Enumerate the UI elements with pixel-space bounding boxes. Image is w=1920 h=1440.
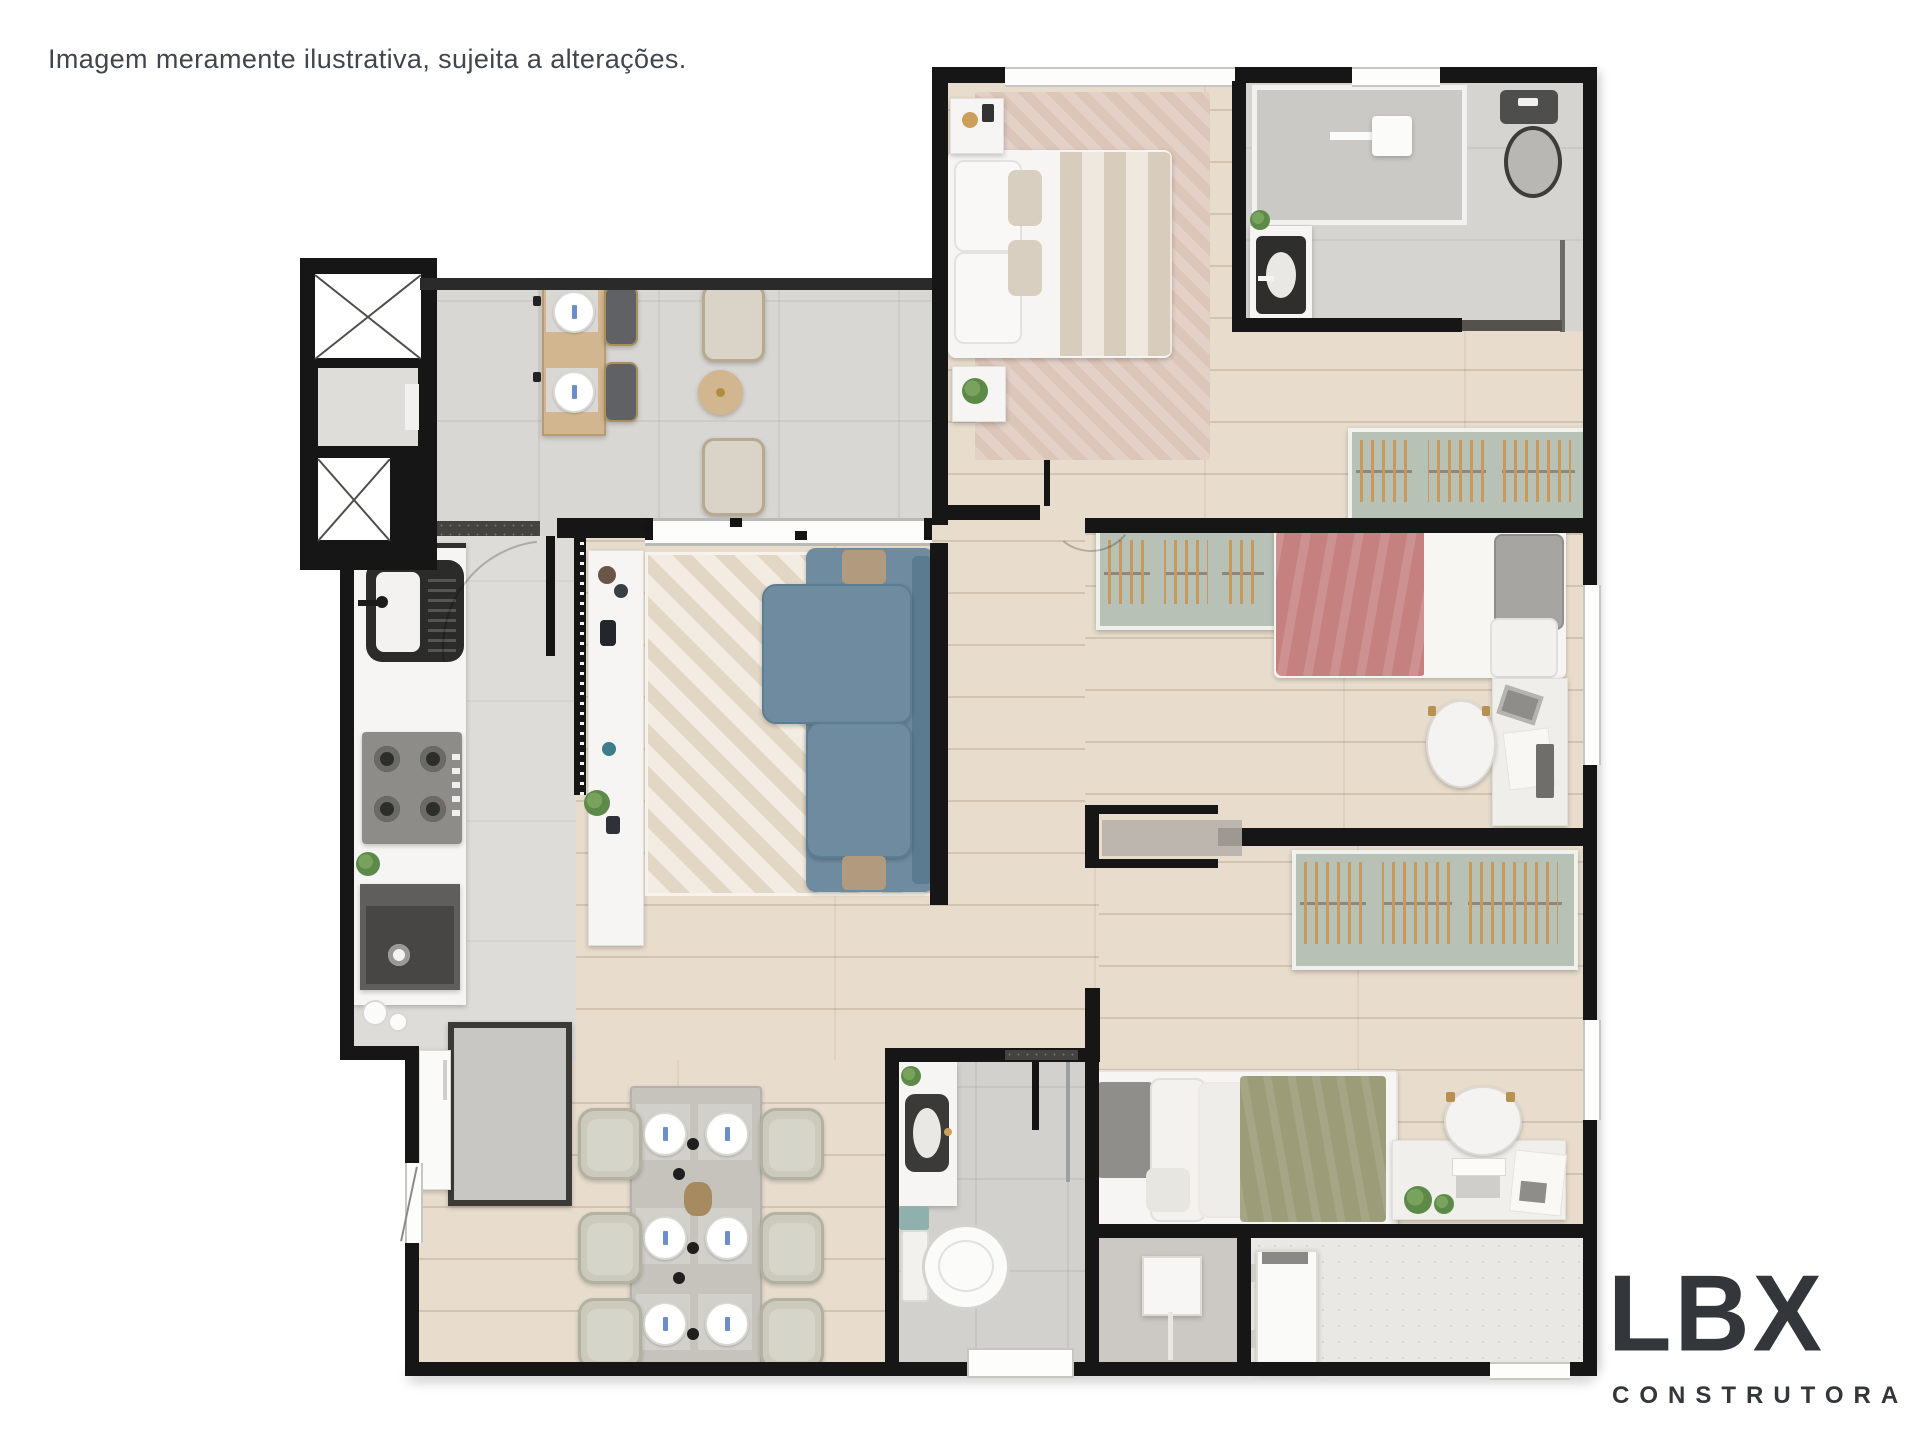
wall-jamb-top bbox=[1093, 805, 1218, 814]
decor bbox=[716, 388, 725, 397]
plate bbox=[705, 1112, 749, 1156]
heater-pipe bbox=[1168, 1312, 1173, 1360]
chair-arm bbox=[1482, 706, 1490, 716]
plate bbox=[553, 291, 595, 333]
hanger-gap bbox=[1150, 540, 1164, 604]
wall-left-step bbox=[340, 1046, 419, 1060]
elevator-car bbox=[318, 368, 418, 446]
pillow-gray bbox=[1494, 534, 1564, 630]
lounge-chair bbox=[702, 284, 765, 362]
elevator-door bbox=[405, 384, 419, 430]
dining-chair bbox=[578, 1298, 642, 1370]
logo-subtitle: CONSTRUTORA bbox=[1612, 1382, 1868, 1410]
laptop-screen bbox=[1452, 1158, 1506, 1176]
shower-arm bbox=[1330, 132, 1378, 140]
sink-bowl bbox=[376, 572, 420, 652]
closet-hangers bbox=[1108, 540, 1260, 604]
cooktop-knobs bbox=[452, 752, 460, 816]
dining-chair bbox=[578, 1108, 642, 1180]
vanity-sink bbox=[1266, 252, 1296, 298]
washing-machine bbox=[1256, 1250, 1318, 1372]
burner bbox=[420, 746, 446, 772]
dark-unit-panel bbox=[366, 906, 454, 984]
hanger-gap bbox=[1366, 862, 1382, 944]
pillow-accent bbox=[1008, 170, 1042, 226]
fridge-handle bbox=[443, 1060, 447, 1100]
decor bbox=[982, 104, 994, 122]
pass-through-counter bbox=[437, 521, 540, 536]
sofa-pillow bbox=[842, 550, 886, 584]
balcony-rail bbox=[420, 278, 932, 290]
shower-glass bbox=[1066, 1062, 1070, 1182]
wall-sofa bbox=[930, 543, 948, 905]
window-bedroom2 bbox=[1583, 585, 1601, 765]
chair-arm bbox=[1446, 1092, 1455, 1102]
decor bbox=[388, 1012, 408, 1032]
balcony-floor bbox=[420, 278, 932, 540]
closet-hangers bbox=[1304, 862, 1558, 944]
towel-rail bbox=[1560, 240, 1565, 332]
plant bbox=[356, 852, 380, 876]
window-masterbath bbox=[1352, 67, 1440, 87]
shaft-box bbox=[315, 274, 421, 358]
sofa-pillow bbox=[842, 856, 886, 890]
sofa-back bbox=[912, 556, 932, 884]
plate bbox=[643, 1302, 687, 1346]
glass bbox=[673, 1272, 685, 1284]
wall-jamb-cap bbox=[1085, 805, 1099, 868]
wall-left-kitchen bbox=[340, 518, 354, 1060]
hanger-gap bbox=[1208, 540, 1222, 604]
window-master bbox=[1005, 67, 1235, 87]
bathroom-niche-counter bbox=[1005, 1050, 1078, 1060]
floorplan-page: Imagem meramente ilustrativa, sujeita a … bbox=[0, 0, 1920, 1440]
builder-logo: LBX CONSTRUTORA bbox=[1608, 1262, 1868, 1410]
plate bbox=[705, 1302, 749, 1346]
door-threshold bbox=[1462, 320, 1562, 331]
glass bbox=[687, 1242, 699, 1254]
duvet-pink bbox=[1276, 530, 1426, 676]
toilet-tank-master bbox=[1500, 90, 1558, 124]
nightstand bbox=[950, 98, 1004, 154]
plate bbox=[705, 1216, 749, 1260]
wall-entry-left bbox=[390, 518, 437, 538]
shower-enclosure bbox=[1252, 85, 1467, 225]
pillow-knit bbox=[1146, 1168, 1190, 1212]
bathroom-door-leaf bbox=[1032, 1062, 1039, 1130]
wall-bedroom3-bottom bbox=[1099, 1224, 1583, 1238]
glass bbox=[687, 1138, 699, 1150]
shower-head bbox=[1372, 116, 1412, 156]
centerpiece bbox=[684, 1182, 712, 1216]
wall-master-bottom bbox=[932, 505, 1040, 520]
faucet-base bbox=[376, 596, 388, 608]
unit-knob bbox=[388, 944, 410, 966]
sofa-cushion bbox=[806, 722, 912, 858]
decor bbox=[606, 816, 620, 834]
shaft-box bbox=[318, 458, 390, 540]
plate bbox=[643, 1216, 687, 1260]
glass bbox=[673, 1168, 685, 1180]
wall-masterbath-bottom bbox=[1232, 318, 1462, 332]
cutlery bbox=[533, 372, 541, 382]
sliding-door-junction bbox=[795, 531, 807, 540]
water-heater bbox=[1142, 1256, 1202, 1316]
sliding-door-cap bbox=[645, 518, 653, 540]
burner bbox=[374, 746, 400, 772]
notebook bbox=[1519, 1181, 1547, 1204]
burner bbox=[420, 796, 446, 822]
cutlery bbox=[533, 296, 541, 306]
bed-sheet bbox=[1424, 530, 1496, 676]
washer-panel bbox=[1262, 1252, 1308, 1264]
window-bedroom3 bbox=[1583, 1020, 1601, 1120]
disclaimer-text: Imagem meramente ilustrativa, sujeita a … bbox=[48, 44, 687, 75]
chair-arm bbox=[1506, 1092, 1515, 1102]
plant bbox=[901, 1066, 921, 1086]
faucet bbox=[1258, 276, 1274, 281]
window-bathroom bbox=[967, 1348, 1074, 1378]
hanger-gap bbox=[1412, 440, 1428, 502]
plant bbox=[1434, 1194, 1454, 1214]
lamp bbox=[962, 112, 978, 128]
duvet-green bbox=[1240, 1076, 1386, 1222]
window-service bbox=[1490, 1362, 1570, 1380]
wall-entry-right bbox=[557, 518, 645, 538]
dining-chair bbox=[760, 1298, 824, 1370]
bed-blanket bbox=[1060, 152, 1172, 356]
toilet-bowl-master bbox=[1504, 126, 1562, 198]
burner bbox=[374, 796, 400, 822]
tablet bbox=[1536, 744, 1554, 798]
entry-door-leaf bbox=[546, 536, 555, 656]
wall-masterbath-partition bbox=[1232, 81, 1246, 331]
wall-bedroom2-top bbox=[1085, 518, 1583, 533]
decor bbox=[362, 1000, 388, 1026]
lounge-chair bbox=[702, 438, 765, 516]
closet-hangers bbox=[1360, 440, 1571, 502]
sofa-chaise bbox=[762, 584, 912, 724]
kitchen-peninsula bbox=[448, 1022, 572, 1206]
decor bbox=[602, 742, 616, 756]
pillow-gray bbox=[1096, 1082, 1154, 1178]
wall-bathroom-right bbox=[1085, 1048, 1099, 1376]
wall-master-left bbox=[932, 81, 948, 525]
faucet bbox=[944, 1128, 952, 1136]
dining-chair bbox=[578, 1212, 642, 1284]
plant bbox=[584, 790, 610, 816]
plant bbox=[962, 378, 988, 404]
glass bbox=[687, 1328, 699, 1340]
plate bbox=[553, 371, 595, 413]
balcony-chair bbox=[604, 286, 638, 346]
chair-arm bbox=[1428, 706, 1436, 716]
wall-bedroom2-bottom bbox=[1218, 828, 1583, 846]
towel bbox=[899, 1206, 929, 1230]
logo-wordmark: LBX bbox=[1608, 1260, 1868, 1368]
dining-chair bbox=[760, 1212, 824, 1284]
wall-bathroom-left bbox=[885, 1048, 899, 1376]
sliding-door-cap bbox=[924, 518, 932, 540]
hanger-gap bbox=[1452, 862, 1468, 944]
vanity-sink bbox=[913, 1108, 941, 1158]
plate bbox=[643, 1112, 687, 1156]
balcony-chair bbox=[604, 362, 638, 422]
dining-chair bbox=[760, 1108, 824, 1180]
sliding-door bbox=[645, 518, 932, 546]
wall-jamb-bottom bbox=[1093, 859, 1218, 868]
toilet-seat bbox=[938, 1240, 994, 1292]
hanger-gap bbox=[1486, 440, 1502, 502]
pocket-door-panel bbox=[1102, 820, 1242, 856]
laptop-base bbox=[1456, 1176, 1500, 1198]
plant bbox=[1404, 1186, 1432, 1214]
flush-button bbox=[1518, 98, 1538, 106]
plant bbox=[1250, 210, 1270, 230]
sliding-door-junction bbox=[730, 518, 742, 527]
pillow bbox=[1490, 618, 1558, 678]
pillow-accent bbox=[1008, 240, 1042, 296]
wall-service-divider bbox=[1237, 1238, 1251, 1362]
